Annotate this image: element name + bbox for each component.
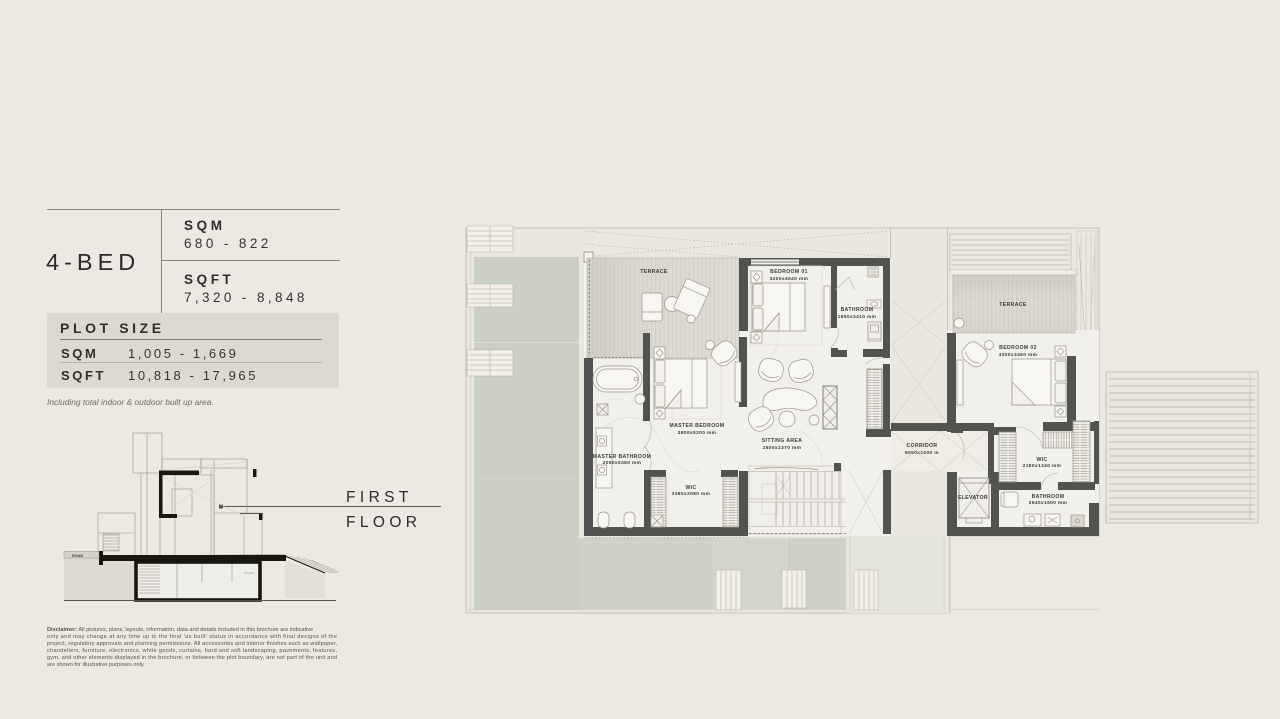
svg-text:only and may change at any tim: only and may change at any time up to th… bbox=[47, 634, 337, 640]
svg-text:project, regulatory approvals: project, regulatory approvals and planni… bbox=[47, 641, 337, 647]
svg-text:SITTING AREA: SITTING AREA bbox=[762, 438, 803, 444]
svg-text:TERRACE: TERRACE bbox=[640, 269, 668, 275]
svg-text:3800x5200 mm: 3800x5200 mm bbox=[678, 430, 717, 436]
svg-text:TERRACE: TERRACE bbox=[999, 302, 1027, 308]
svg-text:ELEVATOR: ELEVATOR bbox=[958, 495, 988, 501]
svg-text:1,005 - 1,669: 1,005 - 1,669 bbox=[128, 346, 238, 361]
svg-text:6050x1500 m: 6050x1500 m bbox=[905, 450, 939, 456]
svg-text:FLOOR: FLOOR bbox=[346, 514, 421, 531]
svg-text:Disclaimer: All pictures, plan: Disclaimer: All pictures, plans, layouts… bbox=[47, 627, 313, 633]
svg-text:FIRST: FIRST bbox=[346, 489, 413, 506]
svg-text:7,320 - 8,848: 7,320 - 8,848 bbox=[184, 290, 308, 305]
svg-text:SQFT: SQFT bbox=[61, 368, 106, 383]
svg-text:3200x4640 mm: 3200x4640 mm bbox=[770, 276, 809, 282]
svg-text:WIC: WIC bbox=[685, 485, 696, 491]
svg-text:3540x1600 mm: 3540x1600 mm bbox=[1029, 500, 1068, 506]
svg-text:680 - 822: 680 - 822 bbox=[184, 236, 272, 251]
svg-text:2180x1340 mm: 2180x1340 mm bbox=[1023, 463, 1062, 469]
svg-text:WIC: WIC bbox=[1036, 457, 1047, 463]
svg-text:gym, and other elements displa: gym, and other elements displayed in the… bbox=[47, 655, 337, 661]
svg-text:1850x3410 mm: 1850x3410 mm bbox=[838, 314, 877, 320]
svg-text:CORRIDOR: CORRIDOR bbox=[907, 443, 938, 449]
svg-text:BEDROOM 01: BEDROOM 01 bbox=[770, 269, 808, 275]
svg-text:BATHROOM: BATHROOM bbox=[1032, 494, 1065, 500]
svg-text:SQM: SQM bbox=[184, 218, 226, 233]
svg-text:4-BED: 4-BED bbox=[46, 249, 140, 275]
svg-text:BATHROOM: BATHROOM bbox=[841, 307, 874, 313]
svg-text:3380x2080 mm: 3380x2080 mm bbox=[672, 491, 711, 497]
svg-text:2800x2370 mm: 2800x2370 mm bbox=[763, 445, 802, 451]
svg-text:are shown for illustrative pur: are shown for illustrative purposes only… bbox=[47, 662, 145, 668]
svg-text:MASTER BATHROOM: MASTER BATHROOM bbox=[593, 454, 652, 460]
svg-text:ROAD: ROAD bbox=[72, 554, 83, 558]
svg-text:SQFT: SQFT bbox=[184, 272, 234, 287]
svg-text:BEDROOM 02: BEDROOM 02 bbox=[999, 345, 1037, 351]
svg-text:chandeliers, furniture, electr: chandeliers, furniture, electronics, whi… bbox=[47, 648, 337, 654]
svg-text:2050x6360 mm: 2050x6360 mm bbox=[603, 460, 642, 466]
svg-text:Including total indoor & outdo: Including total indoor & outdoor built u… bbox=[47, 397, 214, 407]
svg-text:MASTER BEDROOM: MASTER BEDROOM bbox=[669, 423, 724, 429]
svg-text:4300x3450 mm: 4300x3450 mm bbox=[999, 352, 1038, 358]
svg-text:SQM: SQM bbox=[61, 346, 98, 361]
svg-text:PLOT SIZE: PLOT SIZE bbox=[60, 320, 165, 336]
svg-text:10,818 - 17,965: 10,818 - 17,965 bbox=[128, 368, 258, 383]
